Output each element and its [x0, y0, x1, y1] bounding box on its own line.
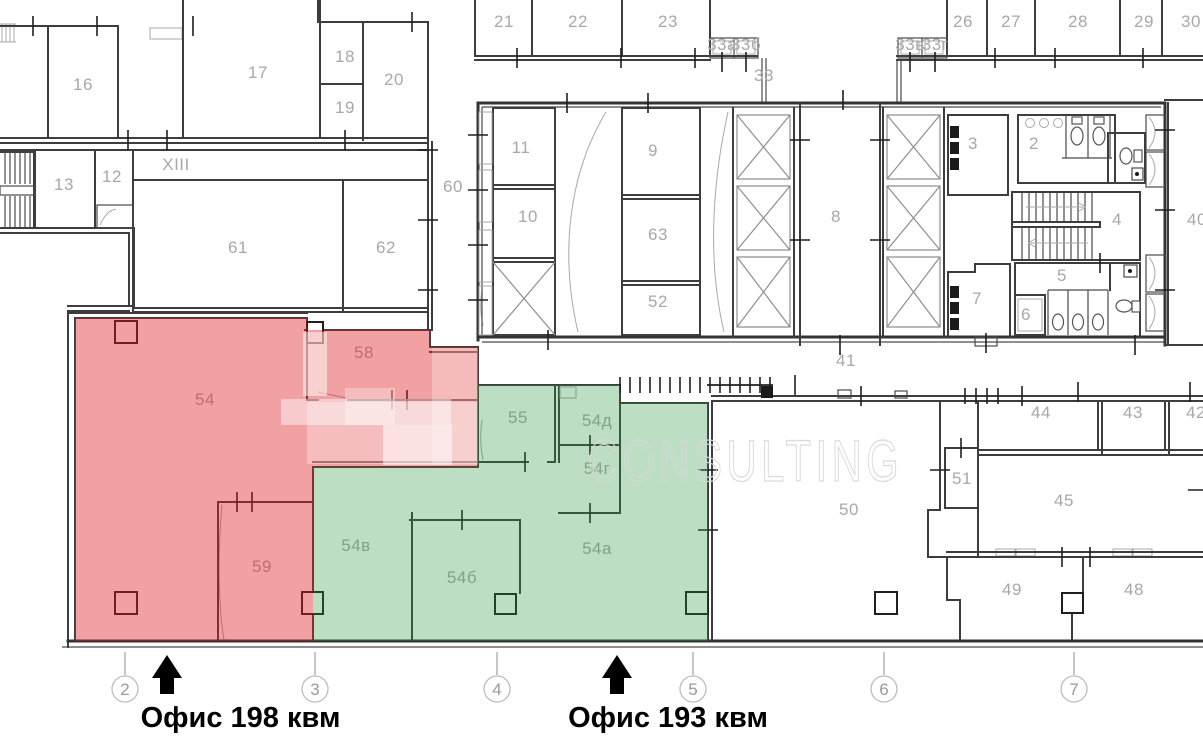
room-label-18: 18	[335, 47, 355, 66]
room-label-3: 3	[968, 134, 978, 153]
room-label-28: 28	[1068, 12, 1088, 31]
room-label-27: 27	[1001, 12, 1021, 31]
room-label-12: 12	[102, 167, 122, 186]
room-label-9: 9	[648, 141, 658, 160]
room-label-45: 45	[1054, 491, 1074, 510]
room-label-51: 51	[952, 469, 972, 488]
room-label-48: 48	[1124, 580, 1144, 599]
room-label-7: 7	[972, 289, 982, 308]
room-label-60: 60	[443, 177, 463, 196]
axis-label-4: 4	[492, 680, 501, 699]
axis-label-7: 7	[1069, 680, 1078, 699]
room-label-29: 29	[1134, 12, 1154, 31]
room-label-21: 21	[494, 12, 514, 31]
room-label-52: 52	[648, 292, 668, 311]
room-label-19: 19	[335, 98, 355, 117]
walls-left-middle-block	[0, 142, 432, 330]
axis-label-3: 3	[310, 680, 319, 699]
office-198-caption: Офис 198 квм	[118, 702, 363, 735]
axis-label-5: 5	[688, 680, 697, 699]
room-label-2: 2	[1029, 134, 1039, 153]
room-label-5: 5	[1057, 266, 1067, 285]
room-label-8: 8	[831, 207, 841, 226]
office-193-caption: Офис 193 квм	[543, 702, 793, 735]
office-198-arrow	[152, 655, 182, 694]
room-label-XIII: XIII	[162, 155, 190, 174]
room-label-33: 33	[754, 66, 774, 85]
room-label-33в: 33в	[895, 35, 924, 54]
room-label-10: 10	[518, 207, 538, 226]
room-label-26: 26	[953, 12, 973, 31]
floor-plan-page: 161718192021222333а33б3333в33г2627282930…	[0, 0, 1203, 751]
room-label-33г: 33г	[922, 35, 949, 54]
room-label-49: 49	[1002, 580, 1022, 599]
room-label-13: 13	[54, 175, 74, 194]
annotation-arrows	[152, 655, 632, 694]
office-193-arrow	[602, 655, 632, 694]
axis-label-2: 2	[120, 680, 129, 699]
room-label-4: 4	[1112, 210, 1122, 229]
room-label-23: 23	[658, 12, 678, 31]
room-label-11: 11	[512, 138, 531, 157]
room-label-62: 62	[376, 238, 396, 257]
room-label-44: 44	[1031, 403, 1051, 422]
room-label-20: 20	[384, 70, 404, 89]
room-label-63: 63	[648, 225, 668, 244]
watermark-text: CONSULTING	[588, 429, 903, 494]
room-label-61: 61	[228, 238, 248, 257]
walls-top-left-block	[0, 0, 428, 143]
room-label-50: 50	[839, 500, 859, 519]
room-label-6: 6	[1021, 305, 1031, 324]
room-label-43: 43	[1123, 403, 1143, 422]
room-label-17: 17	[248, 63, 268, 82]
axis-label-6: 6	[879, 680, 888, 699]
room-label-30: 30	[1181, 12, 1201, 31]
axis-markers-layer: 234567	[112, 652, 1087, 702]
room-label-16: 16	[73, 75, 93, 94]
floor-plan-drawing: 161718192021222333а33б3333в33г2627282930…	[0, 0, 1203, 751]
room-label-22: 22	[568, 12, 588, 31]
room-label-40: 40	[1187, 210, 1203, 229]
room-label-42: 42	[1186, 403, 1203, 422]
room-label-41: 41	[836, 351, 856, 370]
room-label-33б: 33б	[731, 35, 761, 54]
